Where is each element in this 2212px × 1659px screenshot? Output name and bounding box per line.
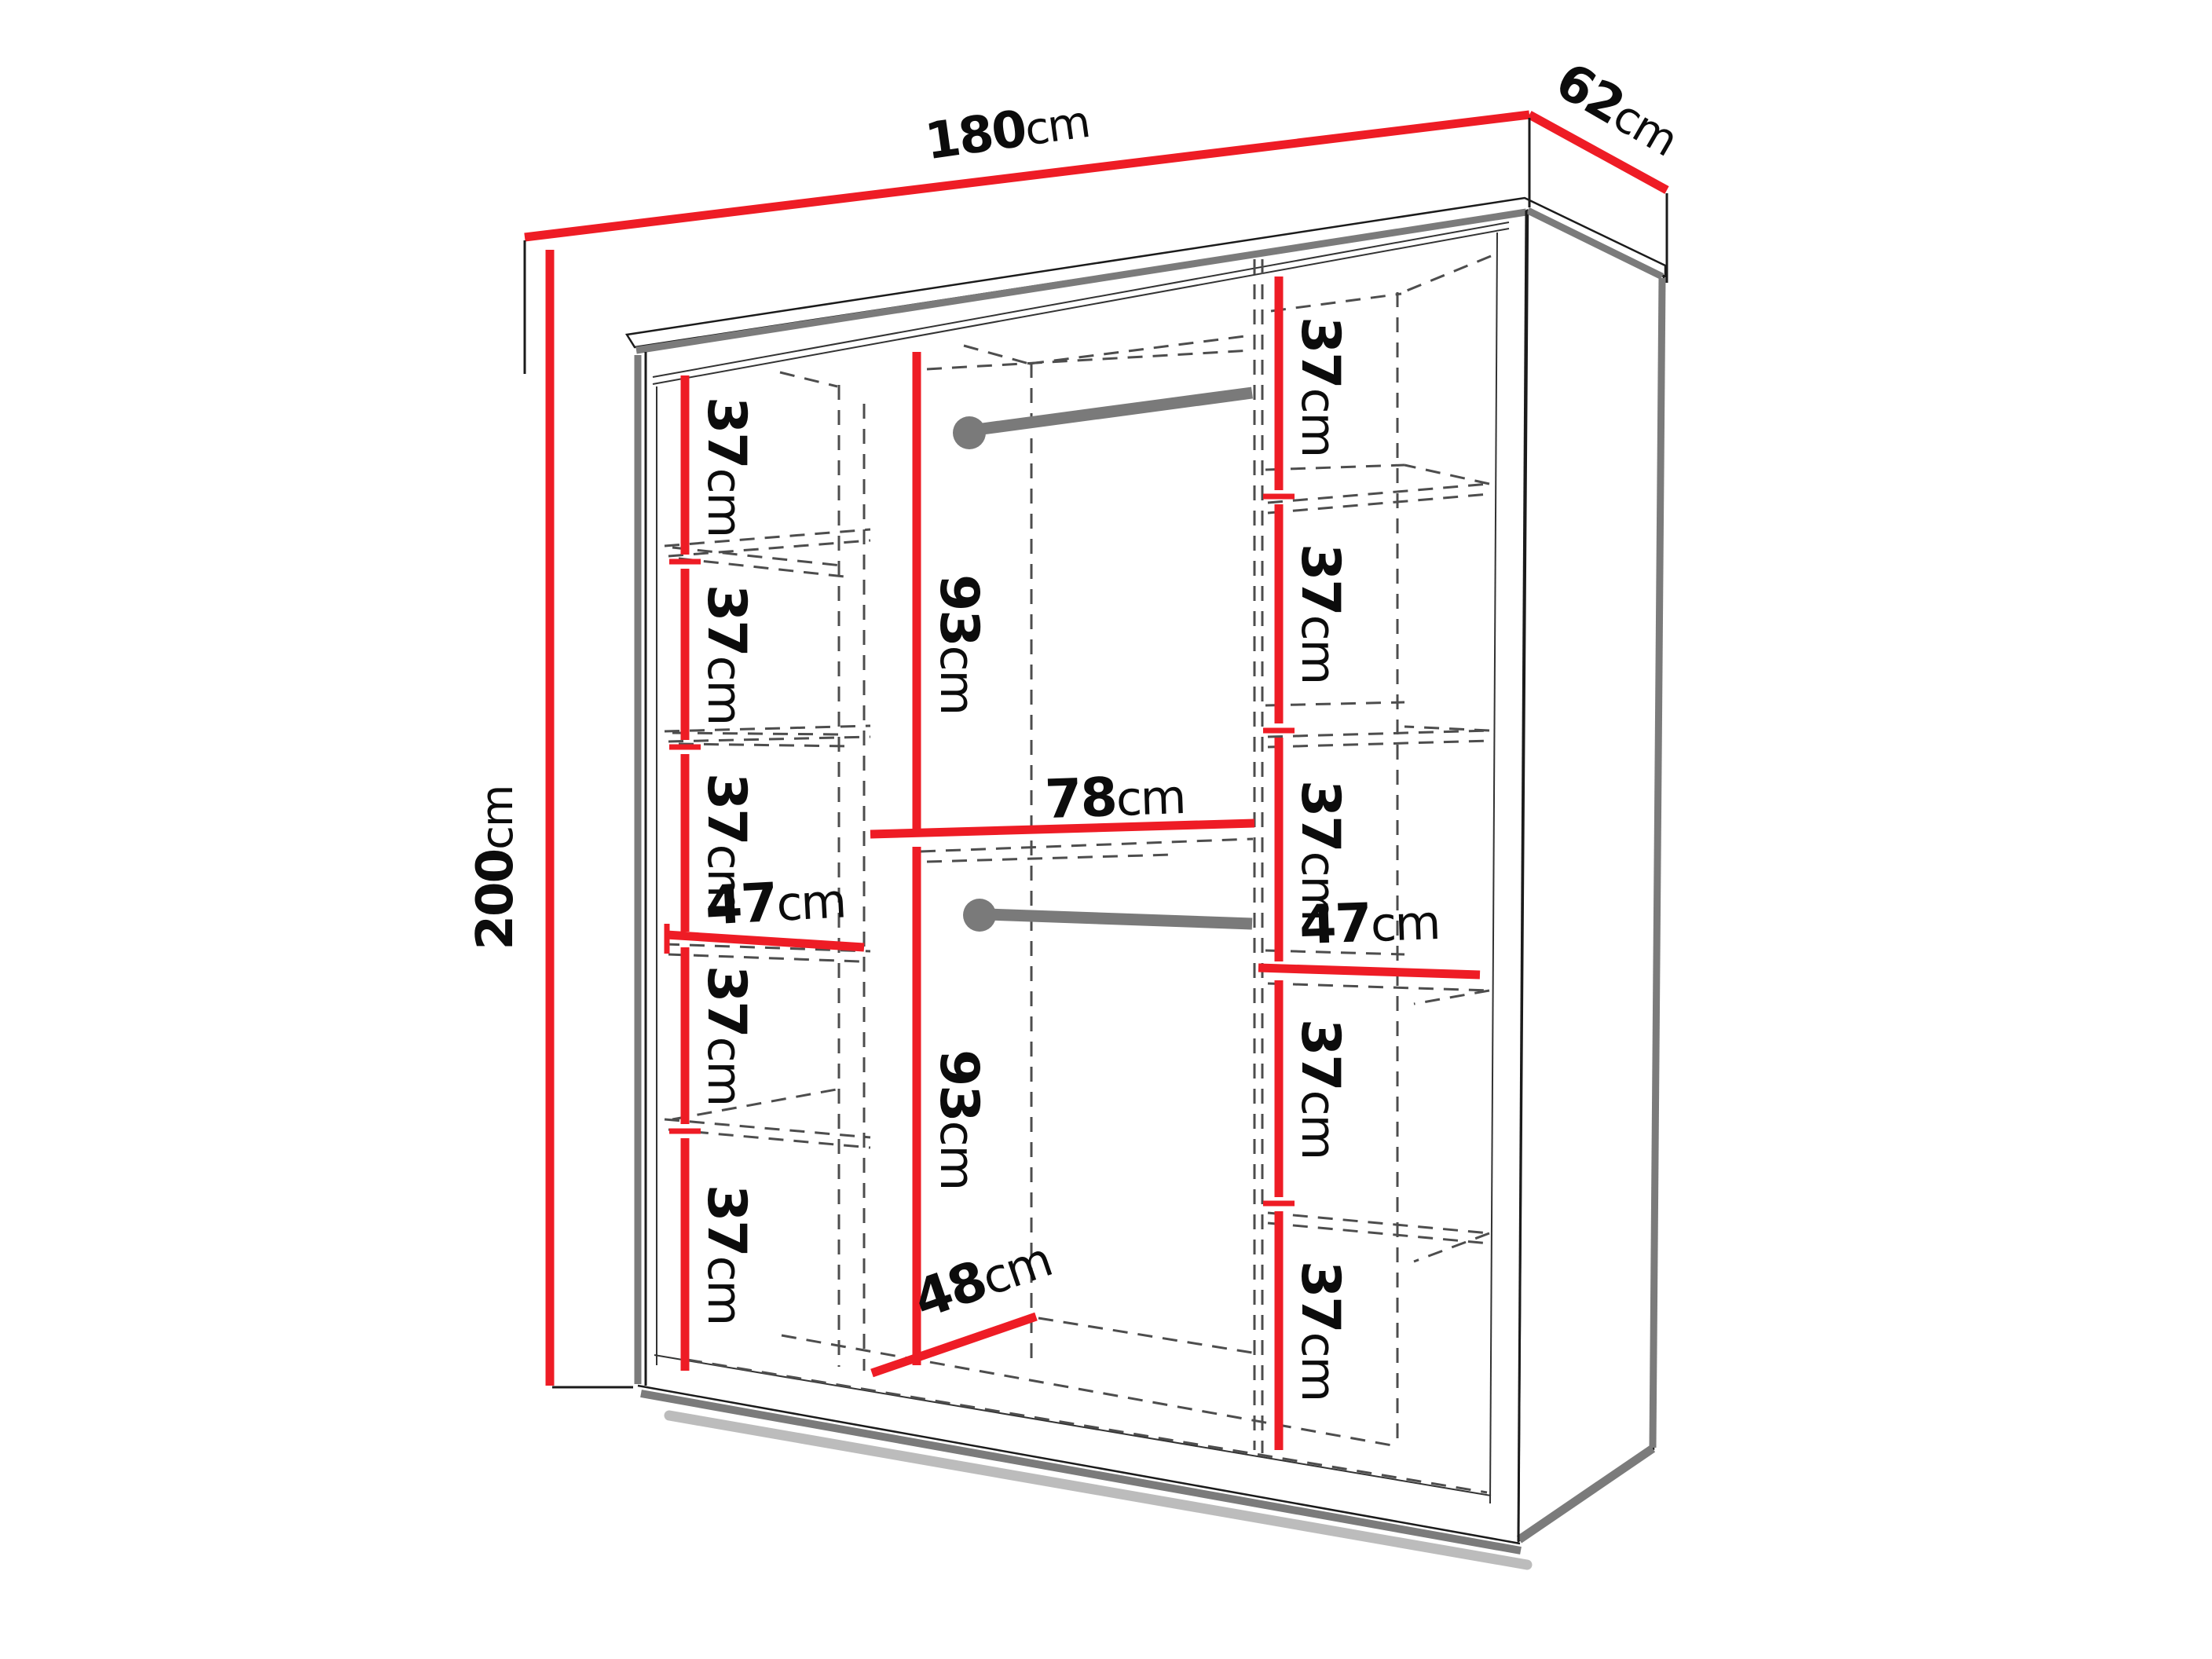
- rail-end-cap-icon: [963, 899, 996, 932]
- wardrobe-dimension-diagram: 180cm 62cm 200cm 37cm 37cm 37cm 37cm 37c…: [0, 0, 2212, 1659]
- dim-label-middle-lower: 93cm: [928, 1049, 990, 1189]
- right-side-face: [1518, 211, 1664, 1541]
- dim-label-left-gap-5: 37cm: [695, 1185, 757, 1324]
- dim-label-width: 180cm: [921, 91, 1092, 171]
- dim-label-right-gap-5: 37cm: [1289, 1261, 1351, 1401]
- dim-label-depth: 62cm: [1546, 52, 1688, 167]
- dim-label-middle-upper: 93cm: [928, 574, 990, 714]
- dim-label-right-gap-4: 37cm: [1289, 1019, 1351, 1159]
- rail-end-cap-icon: [953, 416, 986, 449]
- dim-label-right-gap-1: 37cm: [1289, 317, 1351, 456]
- dim-label-left-gap-2: 37cm: [695, 584, 757, 724]
- dim-label-left-width: 47cm: [704, 868, 847, 937]
- dim-label-height: 200cm: [467, 786, 525, 950]
- dim-label-left-gap-1: 37cm: [695, 397, 757, 537]
- dim-label-middle-width: 78cm: [1044, 764, 1186, 831]
- diagram-canvas: 180cm 62cm 200cm 37cm 37cm 37cm 37cm 37c…: [0, 0, 2212, 1659]
- dim-label-right-width: 47cm: [1298, 890, 1441, 957]
- dim-label-left-gap-4: 37cm: [695, 965, 757, 1105]
- dim-label-right-gap-2: 37cm: [1289, 544, 1351, 683]
